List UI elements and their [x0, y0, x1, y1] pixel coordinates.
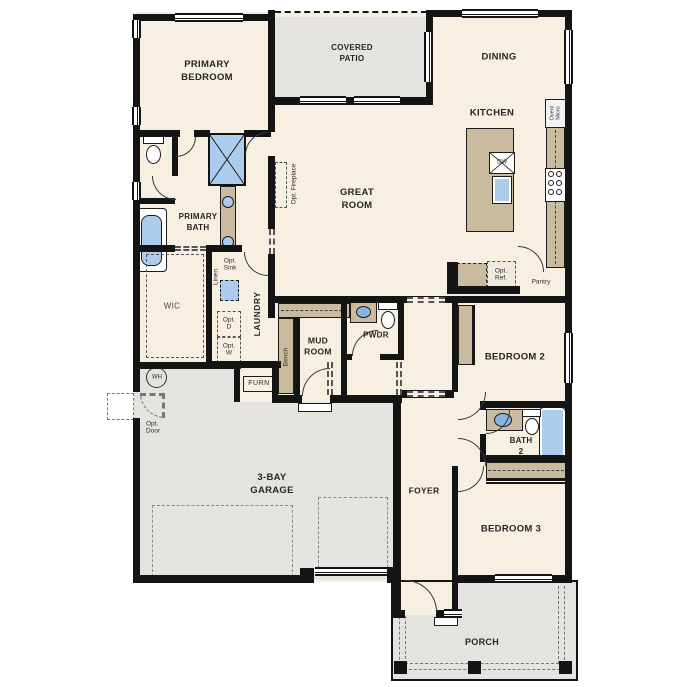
- wall: [341, 354, 352, 360]
- room-label-covered-patio: COVERED PATIO: [331, 43, 373, 65]
- wall: [268, 10, 275, 105]
- window: [132, 182, 141, 200]
- wall: [133, 245, 175, 252]
- toilet: [525, 418, 539, 435]
- wall: [206, 361, 281, 368]
- porch-post: [468, 661, 481, 674]
- cased-opening: [396, 362, 402, 395]
- window: [564, 30, 573, 84]
- opt-washer-label: Opt. W: [223, 343, 235, 358]
- counter-by-fridge: [457, 263, 487, 288]
- wall: [393, 398, 401, 617]
- room-label-dining: DINING: [481, 52, 516, 65]
- wall: [480, 401, 571, 408]
- wall: [272, 395, 302, 403]
- opt-laundry-sink: [220, 280, 239, 301]
- wall: [447, 296, 571, 303]
- wall: [268, 104, 275, 132]
- shower: [208, 133, 246, 186]
- wall: [300, 568, 314, 583]
- wall: [268, 156, 275, 229]
- pwdr-sink: [356, 306, 371, 318]
- garage-door: [315, 567, 391, 576]
- garage-bay-outline: [318, 497, 388, 568]
- water-heater-label: WH: [152, 375, 162, 382]
- room-label-bedroom2: BEDROOM 2: [485, 352, 545, 365]
- window: [132, 20, 141, 38]
- room-label-primary-bedroom: PRIMARY BEDROOM: [181, 59, 233, 85]
- burner: [548, 171, 554, 177]
- room-label-primary-bath: PRIMARY BATH: [179, 212, 218, 234]
- wall: [133, 575, 313, 583]
- window: [424, 32, 433, 82]
- cased-opening: [269, 229, 275, 254]
- room-label-great-room: GREAT ROOM: [340, 187, 374, 213]
- room-label-wic: WIC: [164, 302, 180, 313]
- room-label-porch: PORCH: [465, 636, 499, 648]
- toilet: [146, 145, 161, 164]
- closet-rod-dash: [488, 470, 564, 471]
- wall: [398, 296, 404, 360]
- room-label-bedroom3: BEDROOM 3: [481, 524, 541, 537]
- room-label-foyer: FOYER: [409, 485, 440, 496]
- room-label-pwdr: PWDR: [363, 331, 389, 342]
- wall: [447, 286, 520, 294]
- opt-dryer-label: Opt. D: [223, 317, 235, 332]
- opt-sink-label: Opt. Sink: [224, 258, 237, 273]
- room-label-kitchen: KITCHEN: [470, 108, 514, 121]
- vanity-sink: [222, 196, 234, 208]
- burner: [548, 189, 554, 195]
- opt-door-label: Opt. Door: [146, 421, 160, 436]
- wall: [133, 418, 140, 582]
- porch-post: [559, 661, 572, 674]
- wall: [393, 610, 405, 618]
- wall: [452, 303, 458, 392]
- furnace-label: FURN: [248, 380, 269, 388]
- cased-opening: [175, 246, 206, 251]
- burner: [548, 180, 554, 186]
- toilet: [378, 302, 398, 310]
- bedroom2-closet: [458, 305, 473, 365]
- window: [354, 96, 400, 105]
- room-label-mud-room: MUD ROOM: [304, 336, 332, 359]
- wall: [194, 130, 210, 137]
- burner: [556, 189, 562, 195]
- toilet: [522, 409, 541, 417]
- toilet: [381, 311, 395, 329]
- burner: [556, 180, 562, 186]
- wall: [268, 254, 275, 318]
- wall: [206, 252, 212, 368]
- closet-door-line: [473, 305, 475, 365]
- opt-door-gap: [133, 392, 140, 418]
- porch-post: [394, 661, 407, 674]
- cased-opening: [407, 297, 445, 303]
- opt-fireplace-label: Opt. Fireplace: [290, 164, 297, 205]
- window: [564, 333, 573, 383]
- garage-bay-outline: [152, 505, 293, 577]
- opt-fridge-label: Opt. Ref.: [495, 268, 507, 283]
- window: [444, 609, 462, 618]
- wall: [234, 368, 240, 402]
- room-label-garage: 3-BAY GARAGE: [250, 472, 294, 498]
- room-label-laundry: LAUNDRY: [252, 292, 262, 337]
- window: [495, 574, 552, 583]
- dishwasher-label: DW: [497, 160, 507, 167]
- window: [462, 9, 538, 18]
- opt-door-landing: [107, 393, 134, 420]
- bath2-tub: [539, 407, 566, 460]
- wall: [341, 296, 347, 397]
- floor-plan: DW Oven/ Micro Opt. Ref.: [0, 0, 687, 687]
- wall: [133, 370, 140, 392]
- garage-step: [298, 403, 332, 412]
- patio-open-edge: [275, 11, 427, 13]
- front-step: [434, 617, 458, 626]
- window: [300, 96, 346, 105]
- burner: [556, 171, 562, 177]
- pantry-label: Pantry: [532, 278, 551, 285]
- opt-fireplace-box: [275, 162, 287, 208]
- linen-label: Linen: [212, 269, 219, 285]
- window: [132, 107, 141, 125]
- island-sink: [492, 176, 512, 204]
- wall: [294, 318, 300, 396]
- room-label-bath2: BATH 2: [510, 436, 533, 458]
- drop-zone-dash: [281, 310, 347, 311]
- wall: [268, 97, 433, 105]
- bench-label: Bench: [282, 348, 289, 366]
- wall: [206, 245, 242, 252]
- cased-opening: [407, 391, 445, 397]
- window: [175, 13, 243, 22]
- closet-bifold-door: [486, 479, 566, 484]
- oven-micro-label: Oven/ Micro: [550, 106, 563, 121]
